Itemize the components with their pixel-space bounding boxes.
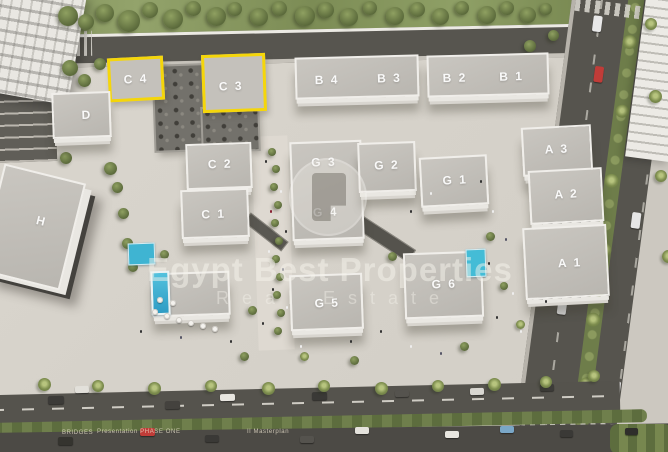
watermark-logo: [289, 158, 367, 236]
pedestrian: [140, 330, 142, 333]
building-label: B 3: [377, 71, 402, 86]
pedestrian: [545, 300, 547, 303]
umbrella: [164, 313, 170, 319]
pedestrian: [280, 190, 282, 193]
building-label: G 1: [442, 172, 468, 187]
building-b4-b3: B 4B 3: [294, 54, 419, 99]
pedestrian: [265, 160, 267, 163]
building-label: A 3: [544, 142, 569, 157]
building-h: H: [0, 163, 86, 290]
pedestrian: [410, 210, 412, 213]
umbrella: [212, 326, 218, 332]
pedestrian: [180, 336, 182, 339]
pedestrian: [505, 238, 507, 241]
building-label: A 2: [554, 186, 579, 201]
building-label: H: [35, 213, 49, 229]
building-label: B 4: [315, 72, 340, 87]
building-c2: C 2: [185, 142, 253, 190]
building-label: C 2: [208, 156, 233, 171]
umbrella: [157, 297, 163, 303]
umbrella: [176, 317, 182, 323]
building-a1: A 1: [522, 224, 610, 300]
building-label: B 2: [442, 70, 467, 85]
pedestrian: [285, 230, 287, 233]
building-label: D: [81, 108, 92, 122]
building-g1: G 1: [419, 154, 490, 207]
watermark-brand: Egypt Best Properties: [147, 251, 513, 289]
building-label: B 1: [499, 69, 524, 84]
pedestrian: [430, 192, 432, 195]
pedestrian: [230, 340, 232, 343]
pedestrian: [496, 316, 498, 319]
building-c4[interactable]: C 4: [107, 56, 165, 103]
building-d: D: [51, 91, 112, 139]
building-g2: G 2: [357, 141, 417, 193]
building-label: C 3: [219, 78, 244, 93]
watermark-glyph-icon: [312, 173, 346, 221]
pedestrian: [300, 345, 302, 348]
pedestrian: [270, 210, 272, 213]
pedestrian: [520, 330, 522, 333]
building-c3[interactable]: C 3: [201, 53, 267, 113]
footer-label-masterplan: Il Masterplan: [247, 429, 289, 435]
building-label: G 2: [374, 158, 400, 173]
building-c1: C 1: [180, 188, 250, 239]
watermark-tagline: Real Estate: [216, 288, 452, 309]
umbrella: [188, 320, 194, 326]
footer-label-bridges: BRIDGES: [62, 430, 93, 436]
umbrella: [152, 309, 158, 315]
pedestrian: [380, 330, 382, 333]
building-b2-b1: B 2B 1: [426, 52, 549, 97]
building-label: C 4: [123, 71, 148, 86]
pedestrian: [492, 210, 494, 213]
pedestrian: [262, 322, 264, 325]
pedestrian: [480, 180, 482, 183]
building-label: C 1: [201, 206, 226, 221]
building-label: A 1: [558, 256, 583, 271]
umbrella: [170, 300, 176, 306]
pedestrian: [410, 345, 412, 348]
footer-label-phase: Presentation PHASE ONE: [97, 429, 181, 435]
building-a2: A 2: [528, 167, 605, 225]
pedestrian: [440, 352, 442, 355]
pedestrian: [512, 292, 514, 295]
master-plan-scene: C 4C 3B 4B 3B 2B 1DHC 2C 1G 3G 4G 2G 1A …: [0, 0, 668, 452]
umbrella: [200, 323, 206, 329]
pedestrian: [350, 340, 352, 343]
